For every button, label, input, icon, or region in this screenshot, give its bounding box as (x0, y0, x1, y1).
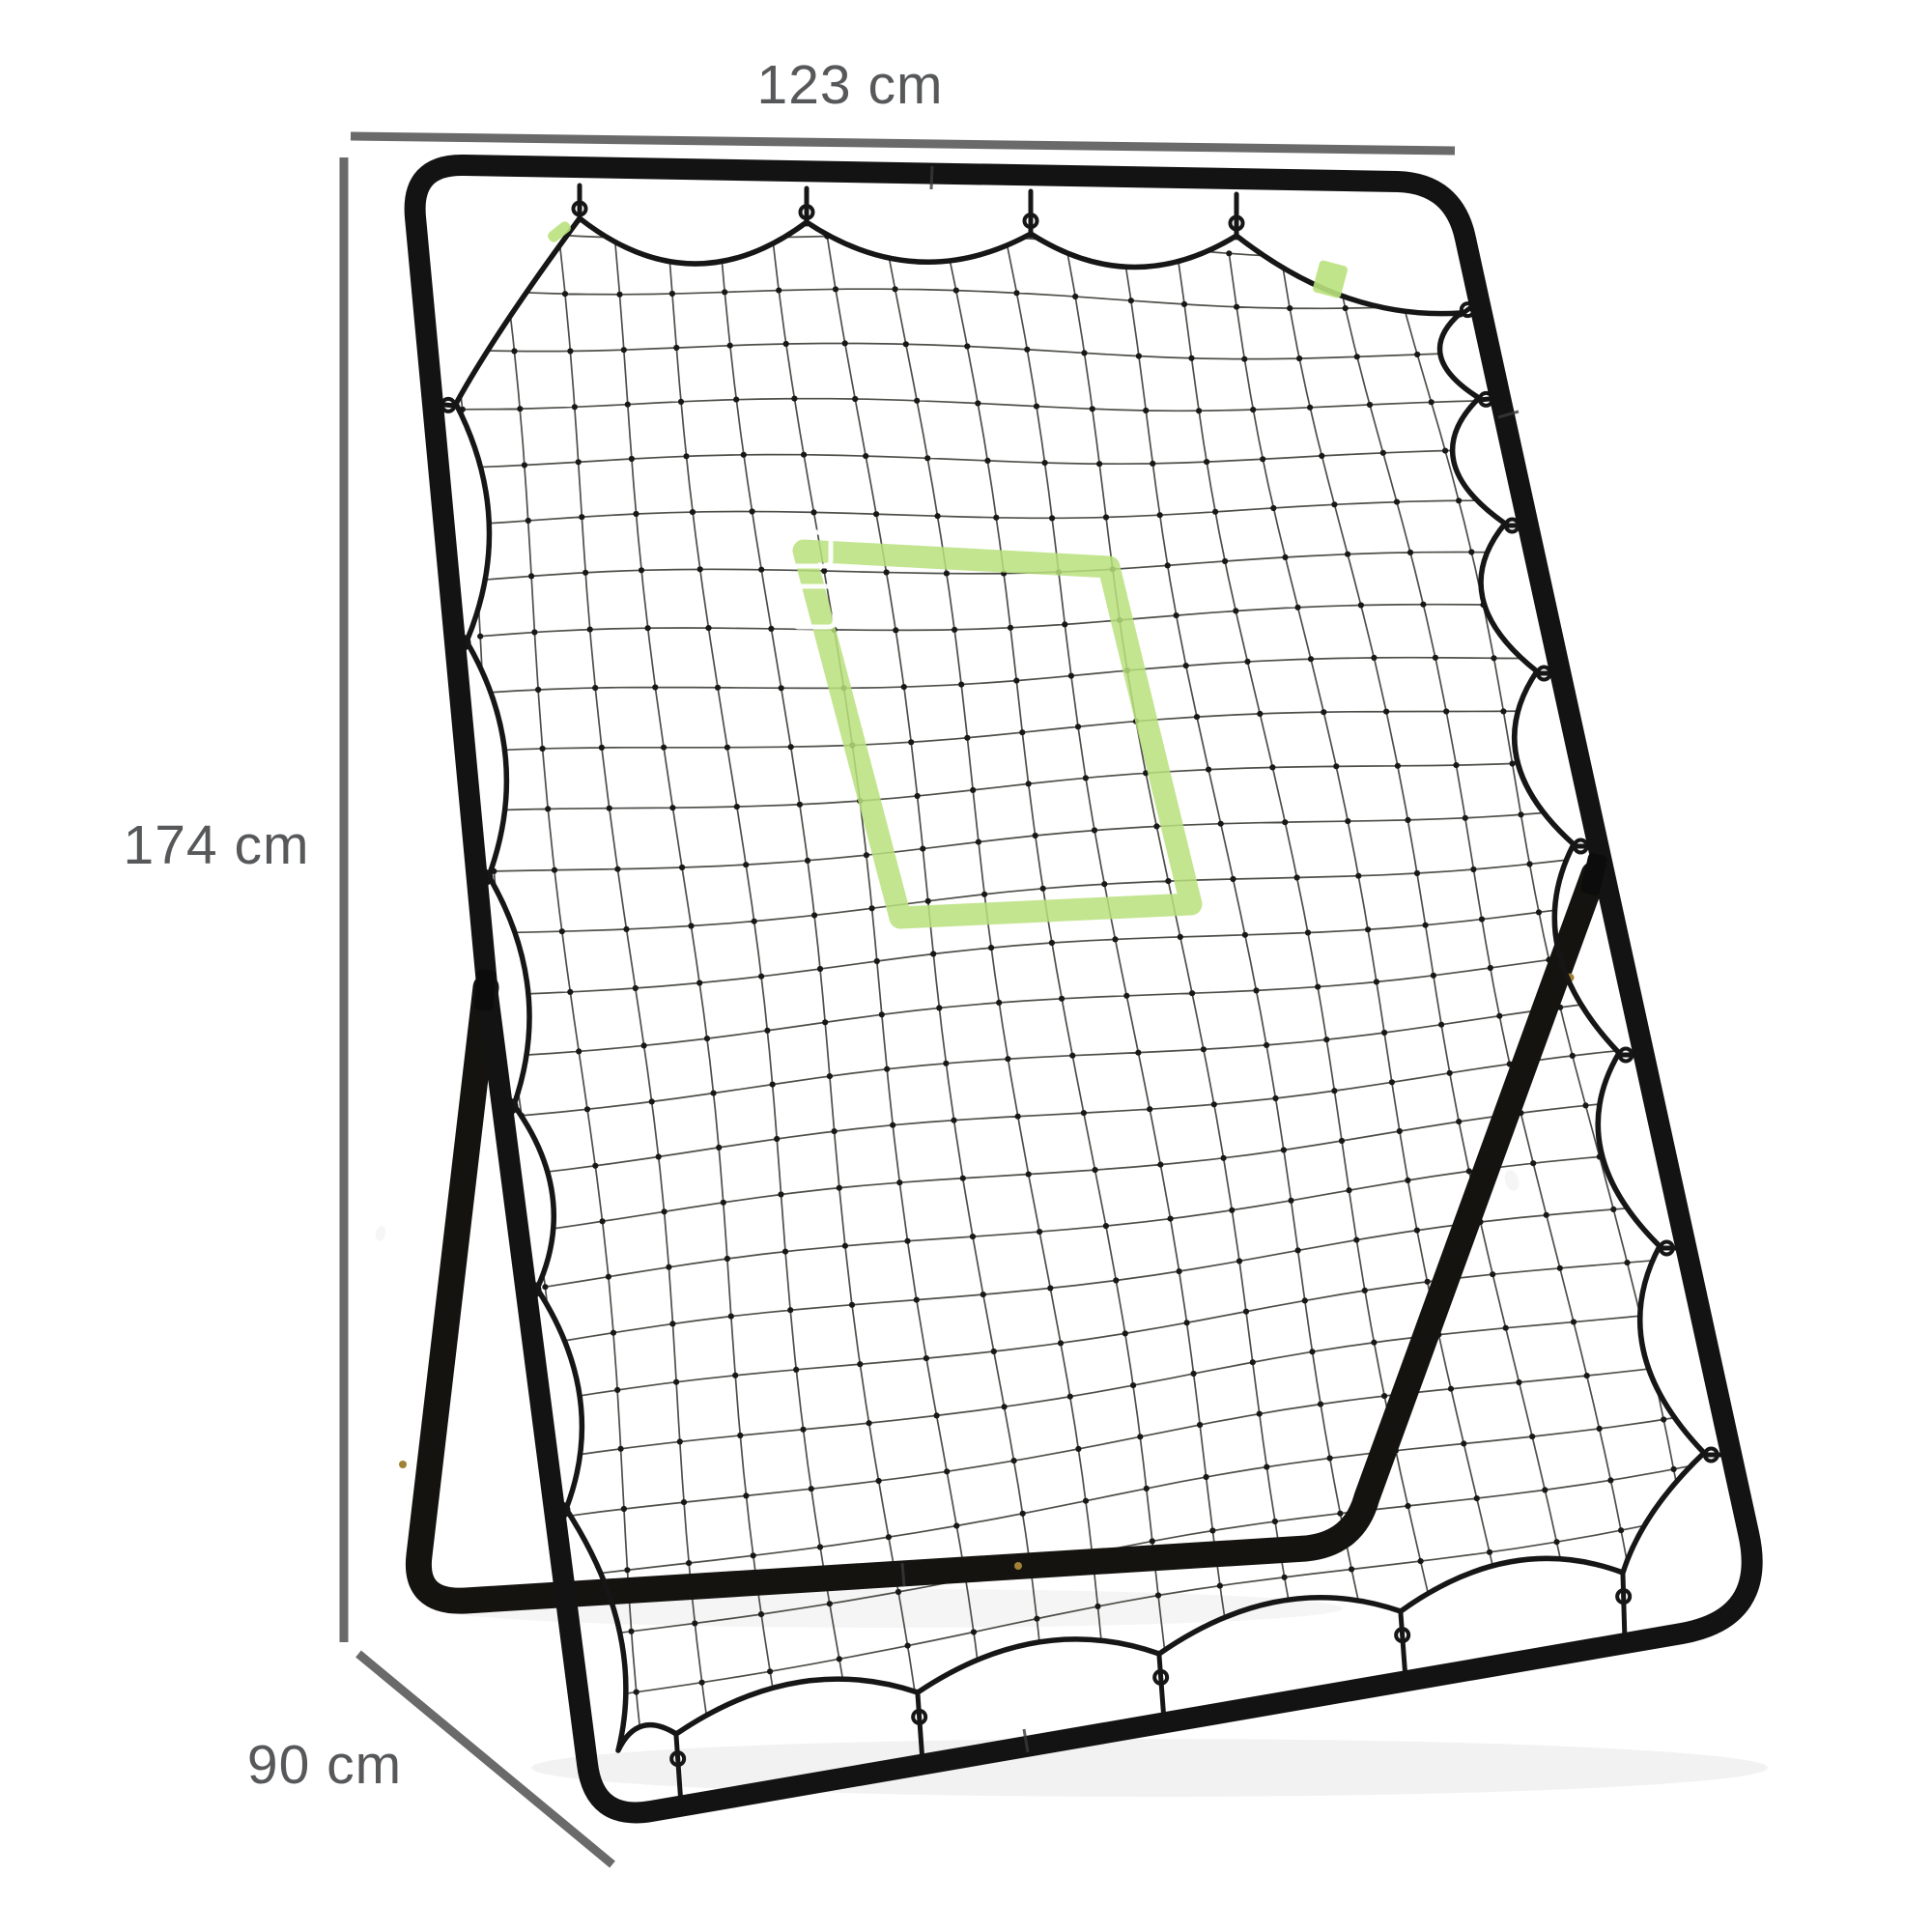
net-knot (634, 1690, 639, 1695)
net-knot (535, 687, 541, 693)
net-knot (1062, 621, 1067, 627)
net-knot (1194, 714, 1200, 720)
net-knot (1414, 1228, 1420, 1234)
net-knot (1058, 1340, 1064, 1346)
net-knot (1331, 1088, 1337, 1094)
net-knot (1345, 818, 1350, 824)
net-knot (914, 1297, 920, 1303)
net-knot (1516, 1379, 1521, 1385)
net-knot (1211, 1101, 1217, 1107)
net-knot (1257, 1411, 1263, 1417)
net-knot (1349, 1566, 1354, 1572)
net-knot (554, 1397, 559, 1403)
net-knot (716, 1145, 722, 1151)
net-knot (767, 1668, 773, 1674)
net-knot (832, 1128, 838, 1134)
net-knot (606, 1274, 611, 1280)
net-knot (890, 1122, 895, 1128)
net-knot (758, 567, 764, 573)
net-knot (624, 1567, 630, 1573)
net-knot (1498, 1602, 1504, 1607)
net-knot (827, 1073, 833, 1079)
net-knot (1295, 1247, 1301, 1253)
net-knot (1474, 1495, 1480, 1501)
net-knot (942, 233, 948, 239)
net-knot (487, 808, 493, 813)
net-knot (1307, 405, 1313, 411)
net-knot (1309, 1349, 1315, 1354)
net-knot (623, 926, 629, 932)
net-knot (1371, 655, 1377, 661)
net-knot (1443, 708, 1449, 714)
net-knot (1206, 767, 1211, 773)
net-knot (444, 286, 450, 292)
net-knot (1136, 354, 1142, 359)
net-knot (751, 1552, 756, 1558)
net-knot (1288, 1198, 1293, 1204)
net-knot (779, 685, 784, 691)
net-knot (628, 1629, 634, 1634)
net-knot (1204, 1474, 1209, 1480)
net-knot (951, 1118, 956, 1123)
net-knot (531, 629, 537, 635)
net-knot (1221, 1155, 1227, 1161)
net-knot (614, 867, 620, 872)
net-knot (924, 455, 930, 461)
net-knot (690, 509, 696, 515)
net-knot (1260, 456, 1265, 462)
net-knot (696, 980, 702, 985)
net-knot (662, 1208, 668, 1214)
net-knot (833, 286, 838, 292)
net-knot (901, 684, 907, 690)
net-knot (1282, 1575, 1288, 1580)
net-knot (584, 1106, 590, 1112)
net-knot (975, 400, 980, 406)
net-knot (1395, 763, 1401, 769)
net-knot (572, 404, 578, 410)
net-knot (1302, 1297, 1308, 1303)
net-knot (768, 626, 774, 632)
net-knot (1103, 1223, 1109, 1229)
net-knot (1081, 1110, 1087, 1116)
net-knot (1597, 1426, 1603, 1432)
net-knot (1090, 406, 1095, 412)
net-knot (1463, 815, 1468, 821)
net-knot (1236, 1258, 1242, 1264)
net-knot (673, 345, 679, 351)
net-knot (1069, 1053, 1075, 1059)
net-knot (827, 1601, 833, 1606)
net-knot (1405, 1178, 1410, 1183)
net-knot (733, 397, 739, 403)
net-knot (629, 456, 635, 462)
net-knot (960, 1176, 966, 1181)
net-knot (1212, 509, 1218, 515)
net-knot (1144, 1486, 1150, 1492)
net-knot (614, 1387, 620, 1393)
net-knot (1500, 708, 1506, 714)
net-knot (944, 571, 950, 577)
net-knot (970, 787, 976, 793)
net-knot (1278, 254, 1284, 260)
net-knot (1068, 673, 1074, 679)
net-knot (669, 805, 675, 810)
net-knot (1453, 762, 1459, 768)
net-knot (964, 735, 970, 741)
net-knot (970, 1234, 976, 1239)
net-knot (1106, 1715, 1112, 1720)
net-knot (1305, 929, 1311, 935)
net-knot (1346, 1187, 1351, 1193)
net-knot (1438, 1022, 1444, 1028)
green-tag (1312, 260, 1349, 299)
net-knot (1178, 934, 1183, 940)
net-knot (1759, 1596, 1765, 1602)
net-knot (1315, 984, 1321, 990)
net-knot (896, 1179, 902, 1185)
hook-strap (1401, 1613, 1406, 1679)
net-knot (1033, 833, 1038, 838)
net-knot (1013, 290, 1019, 296)
net-knot (864, 852, 869, 858)
net-knot (1447, 1070, 1453, 1076)
net-knot (863, 453, 868, 459)
net-knot (1083, 775, 1089, 781)
net-knot (1610, 1207, 1616, 1212)
net-knot (1661, 1416, 1666, 1422)
net-knot (1553, 1539, 1559, 1545)
net-knot (1697, 1609, 1703, 1615)
net-knot (1183, 663, 1189, 668)
net-knot (1680, 1515, 1686, 1520)
net-knot (783, 341, 789, 347)
net-knot (1155, 1592, 1161, 1598)
net-knot (1628, 1577, 1634, 1582)
net-knot (652, 684, 658, 690)
net-knot (1571, 1319, 1577, 1324)
net-knot (686, 1560, 692, 1566)
net-knot (1188, 355, 1194, 361)
net-knot (517, 406, 523, 412)
net-knot (1233, 608, 1238, 613)
net-knot (764, 1028, 770, 1034)
net-knot (1470, 867, 1476, 872)
net-knot (1204, 459, 1209, 465)
net-knot (920, 846, 925, 852)
net-knot (882, 233, 888, 239)
net-knot (1169, 1705, 1175, 1711)
net-knot (1201, 1046, 1207, 1052)
net-knot (579, 514, 584, 520)
net-knot (1147, 1106, 1152, 1112)
net-knot (944, 1468, 950, 1474)
net-knot (1253, 987, 1259, 993)
net-knot (1150, 461, 1155, 467)
net-knot (1130, 1382, 1136, 1388)
net-knot (953, 1522, 959, 1528)
net-knot (1003, 235, 1009, 241)
net-knot (526, 518, 531, 524)
net-knot (1157, 1162, 1163, 1168)
hook-strap (1159, 1656, 1164, 1720)
net-knot (688, 923, 694, 928)
net-knot (1128, 298, 1134, 303)
net-knot (801, 452, 807, 458)
net-knot (741, 452, 747, 458)
net-knot (893, 286, 898, 292)
net-knot (1423, 923, 1429, 928)
net-knot (1019, 729, 1025, 735)
net-knot (666, 1264, 671, 1270)
net-knot (727, 343, 733, 349)
net-knot (869, 905, 875, 911)
net-knot (1026, 1172, 1032, 1178)
net-knot (552, 867, 557, 873)
net-knot (522, 462, 527, 468)
net-knot (1015, 1114, 1021, 1120)
net-knot (811, 912, 817, 918)
hook-strap (676, 1736, 681, 1804)
net-knot (1272, 1519, 1278, 1524)
net-knot (925, 898, 931, 904)
net-knot (793, 1367, 799, 1373)
net-knot (1337, 1511, 1343, 1517)
net-knot (497, 228, 503, 234)
net-knot (1244, 659, 1250, 665)
net-knot (1343, 305, 1349, 311)
width-dimension-label: 123 cm (757, 54, 944, 116)
net-knot (1226, 250, 1232, 256)
net-knot (1094, 1604, 1100, 1609)
net-knot (661, 745, 667, 751)
net-knot (1618, 1527, 1624, 1533)
net-knot (817, 966, 823, 972)
net-knot (1414, 870, 1420, 876)
net-knot (743, 862, 749, 867)
net-knot (559, 928, 565, 934)
net-knot (817, 1544, 823, 1549)
net-knot (1333, 763, 1339, 769)
net-knot (774, 1136, 780, 1142)
net-knot (1096, 461, 1102, 467)
net-knot (1184, 1320, 1190, 1325)
net-knot (867, 1420, 872, 1426)
net-knot (717, 236, 723, 241)
net-knot (1011, 1458, 1017, 1463)
net-knot (1209, 1527, 1215, 1533)
net-knot (1536, 909, 1542, 915)
net-knot (592, 685, 598, 691)
net-knot (1103, 514, 1109, 520)
net-knot (1234, 304, 1239, 310)
net-knot (978, 1683, 983, 1689)
net-knot (1332, 256, 1338, 262)
net-knot (1222, 558, 1228, 564)
net-knot (1063, 238, 1068, 243)
net-knot (474, 578, 480, 583)
net-knot (923, 1355, 929, 1361)
net-knot (1040, 886, 1046, 892)
net-knot (669, 291, 675, 297)
seam (902, 1563, 904, 1586)
net-knot (1242, 932, 1248, 938)
net-knot (1448, 1386, 1454, 1392)
net-knot (1362, 1288, 1368, 1293)
net-knot (621, 347, 627, 353)
net-knot (1456, 497, 1462, 503)
net-knot (1113, 1277, 1119, 1283)
net-knot (1013, 678, 1019, 684)
net-knot (1005, 1056, 1010, 1062)
leg-sticker-left (375, 1225, 387, 1241)
net-knot (1177, 1268, 1182, 1274)
net-knot (1388, 256, 1394, 262)
net-knot (1529, 1434, 1535, 1439)
net-knot (1067, 1394, 1073, 1400)
net-knot (1468, 549, 1474, 554)
net-knot (1034, 404, 1039, 410)
net-knot (1257, 711, 1263, 717)
net-knot (1034, 1616, 1039, 1622)
net-knot (904, 1238, 910, 1244)
net-knot (1075, 724, 1081, 729)
net-knot (1456, 1119, 1462, 1124)
net-knot (737, 1433, 743, 1438)
net-knot (1189, 990, 1195, 996)
net-knot (1282, 819, 1288, 825)
net-knot (1361, 1622, 1367, 1628)
net-knot (1544, 1212, 1549, 1218)
net-knot (1157, 512, 1163, 518)
net-knot (528, 573, 534, 579)
net-knot (1287, 305, 1293, 311)
net-knot (1487, 1549, 1492, 1555)
net-knot (611, 1330, 616, 1336)
net-knot (526, 1171, 532, 1177)
net-knot (770, 1082, 776, 1088)
net-knot (1075, 1446, 1081, 1452)
hook-strap (1623, 1575, 1625, 1640)
net-knot (1072, 294, 1078, 299)
net-knot (1407, 550, 1413, 555)
net-knot (884, 1066, 890, 1072)
net-knot (722, 289, 727, 295)
net-knot (503, 992, 509, 998)
net-knot (1318, 1402, 1323, 1407)
net-knot (542, 1284, 548, 1290)
net-knot (497, 930, 502, 936)
net-knot (778, 1191, 783, 1197)
net-knot (952, 627, 957, 633)
net-knot (683, 453, 689, 459)
net-knot (988, 945, 994, 951)
net-knot (1008, 625, 1013, 631)
net-knot (1269, 764, 1275, 770)
net-knot (1197, 1422, 1203, 1428)
net-knot (750, 508, 755, 514)
net-knot (980, 1292, 986, 1297)
net-knot (1339, 1138, 1345, 1144)
net-knot (1250, 1359, 1256, 1365)
net-knot (1557, 1265, 1563, 1271)
net-knot (587, 627, 593, 633)
net-knot (1120, 241, 1125, 247)
net-knot (649, 1098, 655, 1104)
net-knot (545, 806, 551, 811)
net-knot (1100, 1658, 1106, 1663)
net-knot (1479, 917, 1485, 923)
net-knot (483, 748, 489, 753)
net-knot (782, 1249, 788, 1255)
net-knot (805, 858, 810, 864)
net-knot (1039, 1669, 1045, 1675)
height-dimension-label: 174 cm (124, 814, 310, 876)
net-knot (1331, 501, 1337, 507)
net-knot (1319, 453, 1324, 459)
net-knot (1442, 448, 1448, 454)
net-knot (1264, 1042, 1269, 1048)
net-knot (1083, 1498, 1089, 1504)
net-knot (930, 951, 936, 956)
net-knot (466, 465, 471, 470)
net-knot (1049, 515, 1055, 521)
net-knot (934, 1412, 940, 1418)
net-knot (540, 746, 546, 752)
net-knot (607, 806, 612, 811)
net-knot (1381, 1393, 1387, 1399)
net-knot (1165, 878, 1171, 884)
net-knot (914, 398, 920, 404)
net-knot (1196, 408, 1202, 413)
net-knot (787, 1307, 793, 1313)
net-knot (1241, 356, 1247, 362)
net-knot (849, 1302, 855, 1308)
net-knot (936, 1005, 942, 1010)
net-knot (639, 567, 644, 573)
net-knot (1420, 602, 1426, 608)
net-knot (1112, 936, 1118, 942)
net-knot (809, 1486, 814, 1492)
net-knot (1250, 407, 1256, 412)
net-knot (1272, 1095, 1278, 1101)
net-knot (1530, 1160, 1536, 1166)
net-knot (1381, 1030, 1387, 1036)
net-knot (567, 989, 573, 995)
net-knot (567, 348, 573, 354)
rivet-icon (399, 1461, 407, 1468)
net-knot (1002, 1404, 1008, 1409)
net-knot (1308, 656, 1314, 662)
net-knot (1365, 926, 1371, 932)
net-knot (618, 1446, 624, 1452)
net-knot (758, 974, 764, 980)
net-knot (562, 291, 568, 297)
net-knot (549, 1340, 554, 1346)
shadow-under-frame (531, 1739, 1768, 1797)
net-knot (558, 1454, 564, 1460)
net-knot (665, 236, 670, 241)
net-knot (1607, 1477, 1613, 1483)
net-knot (1296, 355, 1302, 361)
net-knot (1137, 1434, 1143, 1439)
net-knot (1045, 1725, 1051, 1731)
width-dimension-line (351, 136, 1455, 151)
net-knot (770, 235, 776, 241)
net-knot (470, 522, 476, 527)
net-knot (1294, 874, 1300, 880)
net-knot (1367, 402, 1373, 408)
